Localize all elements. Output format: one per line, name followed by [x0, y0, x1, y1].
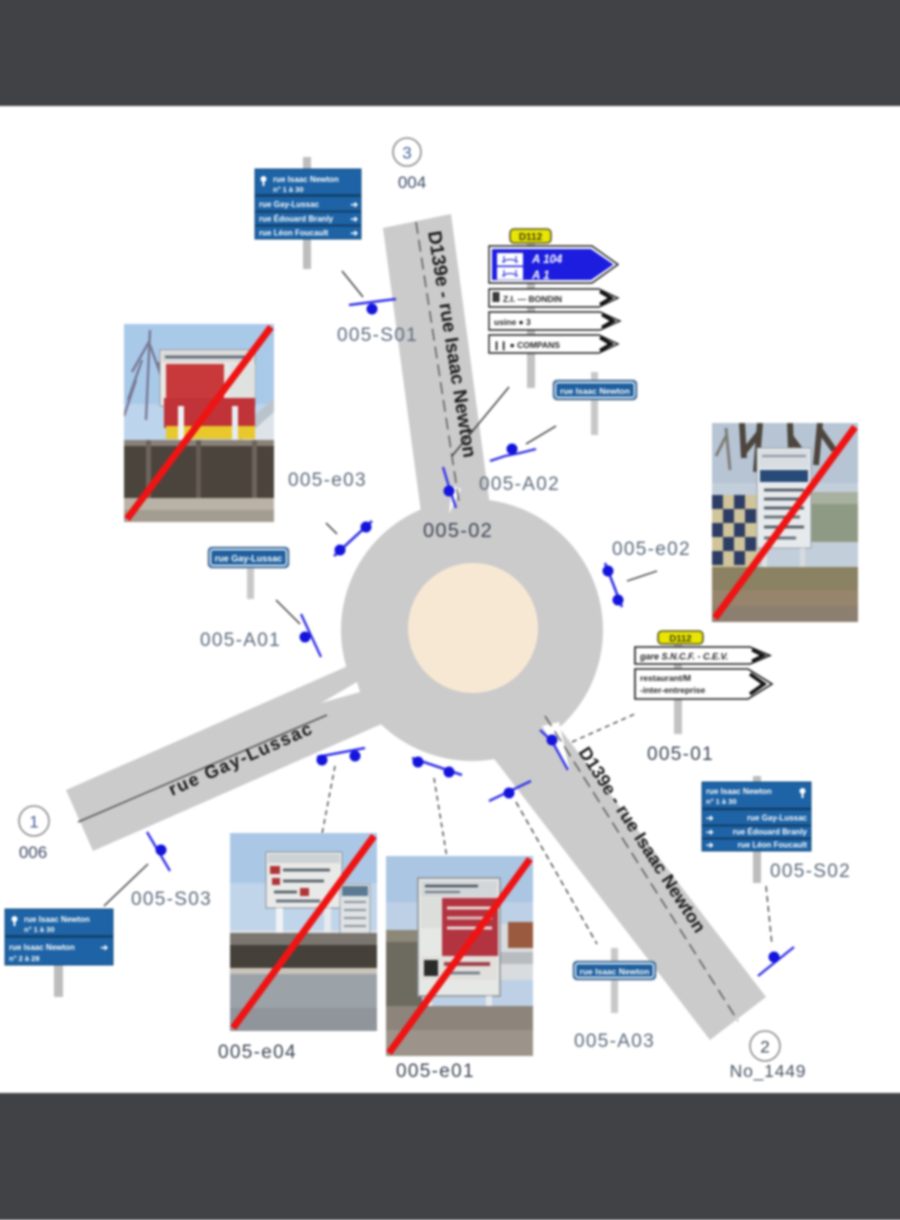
svg-text:rue Isaac Newton: rue Isaac Newton	[560, 386, 630, 396]
svg-text:➔: ➔	[706, 827, 714, 837]
svg-text:rue Gay-Lussac: rue Gay-Lussac	[747, 814, 808, 823]
svg-text:➔: ➔	[350, 200, 358, 210]
svg-text:rue Isaac Newton: rue Isaac Newton	[9, 943, 75, 952]
svg-text:Z.I. — BONDIN: Z.I. — BONDIN	[503, 294, 562, 304]
svg-text:rue Édouard Branly: rue Édouard Branly	[733, 828, 808, 837]
svg-text:005-02: 005-02	[423, 520, 493, 542]
svg-text:005-S03: 005-S03	[131, 889, 212, 910]
svg-text:rue Isaac Newton: rue Isaac Newton	[706, 787, 772, 796]
svg-text:rue Gay-Lussac: rue Gay-Lussac	[259, 200, 320, 209]
svg-text:005-e02: 005-e02	[612, 539, 691, 560]
svg-text:n° 1 à 30: n° 1 à 30	[273, 185, 304, 194]
svg-text:005-S02: 005-S02	[770, 861, 851, 882]
svg-text:➔: ➔	[350, 214, 358, 224]
svg-text:A 104: A 104	[531, 254, 563, 266]
svg-text:usine ● 3: usine ● 3	[494, 317, 531, 327]
svg-text:005-e01: 005-e01	[396, 1061, 475, 1082]
svg-text:004: 004	[398, 173, 426, 192]
svg-text:005-A01: 005-A01	[200, 630, 281, 651]
svg-text:005-01: 005-01	[647, 744, 714, 765]
svg-text:rue Isaac Newton: rue Isaac Newton	[24, 915, 90, 924]
svg-text:2: 2	[760, 1038, 769, 1057]
svg-text:No_1449: No_1449	[730, 1061, 807, 1082]
svg-text:n° 2 à 28: n° 2 à 28	[9, 954, 40, 963]
svg-text:rue Léon Foucault: rue Léon Foucault	[738, 841, 808, 850]
svg-text:005-A03: 005-A03	[574, 1031, 655, 1052]
svg-text:005-S01: 005-S01	[337, 325, 418, 346]
svg-text:1: 1	[29, 813, 38, 832]
svg-text:D112: D112	[519, 232, 543, 243]
svg-text:n° 1 à 30: n° 1 à 30	[24, 925, 55, 934]
svg-text:005-e03: 005-e03	[288, 470, 367, 491]
svg-text:3: 3	[402, 144, 411, 163]
svg-text:➔: ➔	[706, 813, 714, 823]
svg-text:n° 1 à 30: n° 1 à 30	[706, 797, 737, 806]
svg-text:➔: ➔	[100, 943, 108, 953]
svg-text:rue Édouard Branly: rue Édouard Branly	[259, 215, 334, 224]
svg-text:rue Isaac Newton: rue Isaac Newton	[580, 967, 650, 977]
svg-text:➔: ➔	[350, 228, 358, 238]
svg-text:gare S.N.C.F. - C.E.V.: gare S.N.C.F. - C.E.V.	[639, 652, 728, 662]
svg-text:rue Gay-Lussac: rue Gay-Lussac	[215, 554, 283, 564]
svg-text:-inter-entreprise: -inter-entreprise	[640, 685, 705, 695]
svg-text:restaurant/M: restaurant/M	[640, 673, 691, 683]
svg-text:rue Isaac Newton: rue Isaac Newton	[273, 175, 339, 184]
svg-text:➔: ➔	[706, 840, 714, 850]
svg-text:rue Léon Foucault: rue Léon Foucault	[259, 229, 329, 238]
svg-text:006: 006	[19, 843, 47, 862]
svg-text:❙❙ ● COMPANS: ❙❙ ● COMPANS	[493, 340, 560, 351]
svg-text:A 1: A 1	[531, 270, 549, 282]
svg-text:005-e04: 005-e04	[218, 1042, 297, 1063]
svg-text:D112: D112	[669, 634, 691, 645]
svg-text:005-A02: 005-A02	[479, 474, 560, 495]
